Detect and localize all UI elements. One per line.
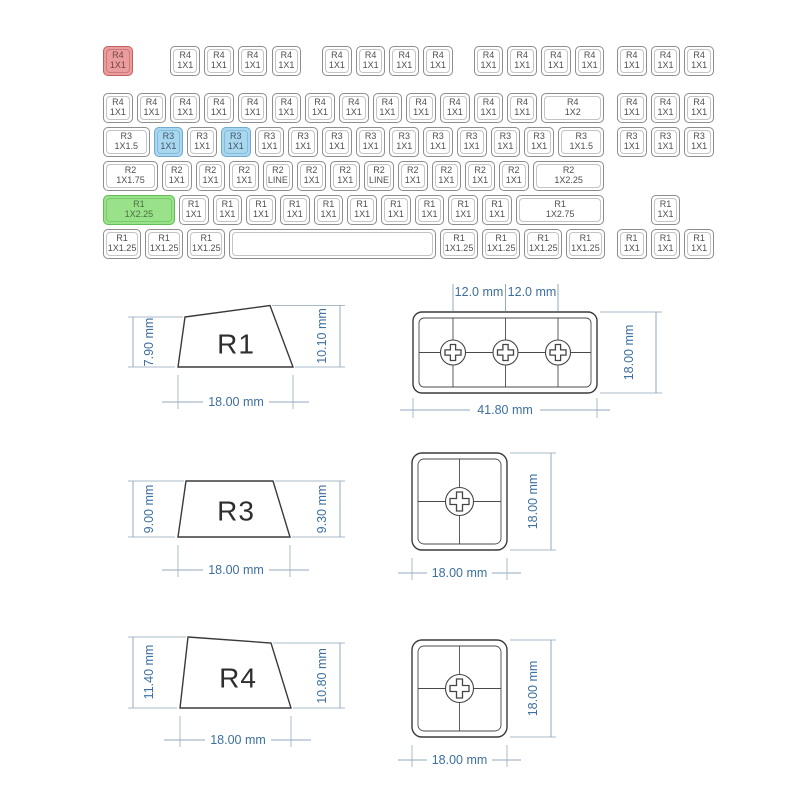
stem-pitch-label-1: 12.0 mm [455,285,504,299]
r4-profile-label: R4 [219,663,257,694]
r3-right-height-label: 9.30 mm [315,485,329,534]
r4-profile-diagram: R4 11.40 mm 10.80 mm 18.00 mm [128,637,345,747]
r3-width-label: 18.00 mm [208,563,264,577]
r1-width-label: 18.00 mm [208,395,264,409]
wide-keycap-width-label: 41.80 mm [477,403,533,417]
r1-profile-label: R1 [217,329,255,360]
r4-right-height-label: 10.80 mm [315,648,329,704]
square-keycap-1-width-label: 18.00 mm [432,566,488,580]
r1-right-height-label: 10.10 mm [315,308,329,364]
r3-profile-label: R3 [217,496,255,527]
keycap-size-chart: R41X1R41X1R41X1R41X1R41X1R41X1R41X1R41X1… [0,0,800,800]
square-keycap-2-height-label: 18.00 mm [526,661,540,717]
wide-keycap-bottom-view: 12.0 mm 12.0 mm 18.00 mm 41.80 mm [400,284,662,418]
r3-left-height-label: 9.00 mm [142,485,156,534]
r3-profile-diagram: R3 9.00 mm 9.30 mm 18.00 mm [128,481,345,577]
r1-profile-diagram: R1 7.90 mm 10.10 mm 18.00 mm [128,306,345,410]
keycap-dimension-diagrams: R1 7.90 mm 10.10 mm 18.00 mm R3 9.00 mm … [0,0,800,800]
r4-left-height-label: 11.40 mm [142,645,156,700]
r1-left-height-label: 7.90 mm [142,318,156,367]
wide-keycap-height-label: 18.00 mm [622,325,636,381]
square-keycap-bottom-view-1: 18.00 mm 18.00 mm [398,453,556,580]
square-keycap-bottom-view-2: 18.00 mm 18.00 mm [398,640,556,767]
r4-width-label: 18.00 mm [210,733,266,747]
stem-pitch-label-2: 12.0 mm [508,285,557,299]
square-keycap-2-width-label: 18.00 mm [432,753,488,767]
square-keycap-1-height-label: 18.00 mm [526,474,540,530]
